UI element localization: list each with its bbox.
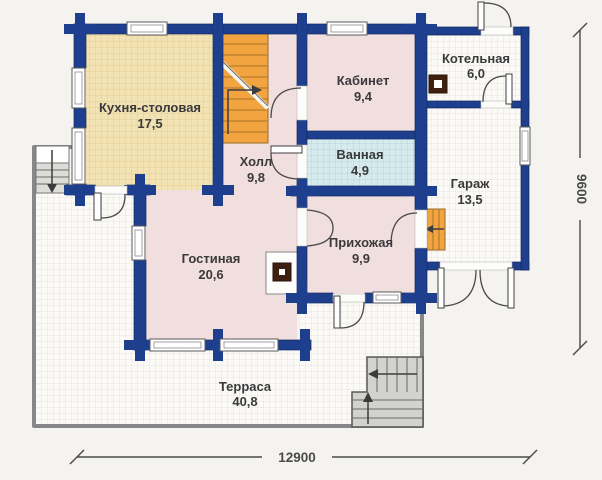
window xyxy=(127,22,167,35)
room-label-boiler: Котельная xyxy=(442,51,510,66)
room-label-study: Кабинет xyxy=(337,73,390,88)
room-label-terrace: Терраса xyxy=(219,379,272,394)
room-area-kitchen: 17,5 xyxy=(137,116,162,131)
window xyxy=(327,22,367,35)
room-area-hall: 9,8 xyxy=(247,170,265,185)
room-area-living: 20,6 xyxy=(198,267,223,282)
dimension-depth-label: 9600 xyxy=(574,174,589,204)
room-label-garage: Гараж xyxy=(451,176,491,191)
room-area-bathroom: 4,9 xyxy=(351,163,369,178)
garage-steps xyxy=(425,209,445,250)
room-label-kitchen: Кухня-столовая xyxy=(99,100,201,115)
window xyxy=(72,128,85,184)
staircase xyxy=(221,33,268,143)
room-area-study: 9,4 xyxy=(354,89,373,104)
floor-plan-canvas: 12900 9600 Кухня-столовая 17,5 Холл 9,8 … xyxy=(0,0,602,480)
room-area-entry: 9,9 xyxy=(352,251,370,266)
room-area-terrace: 40,8 xyxy=(232,394,257,409)
floor-plan-drawing: 12900 9600 Кухня-столовая 17,5 Холл 9,8 … xyxy=(0,0,602,480)
door-boiler-exterior xyxy=(478,2,513,35)
window xyxy=(220,339,278,351)
window xyxy=(373,292,401,303)
boiler-icon xyxy=(429,75,447,93)
room-label-bathroom: Ванная xyxy=(336,147,383,162)
room-label-living: Гостиная xyxy=(182,251,241,266)
garage-gate xyxy=(438,262,514,308)
window xyxy=(150,339,205,351)
dimension-width-label: 12900 xyxy=(278,450,316,465)
room-area-garage: 13,5 xyxy=(457,192,482,207)
room-label-entry: Прихожая xyxy=(329,235,393,250)
fireplace-icon xyxy=(266,252,298,294)
window xyxy=(520,127,530,165)
room-area-boiler: 6,0 xyxy=(467,66,485,81)
window xyxy=(72,68,85,108)
window xyxy=(132,226,145,260)
room-label-hall: Холл xyxy=(240,154,273,169)
